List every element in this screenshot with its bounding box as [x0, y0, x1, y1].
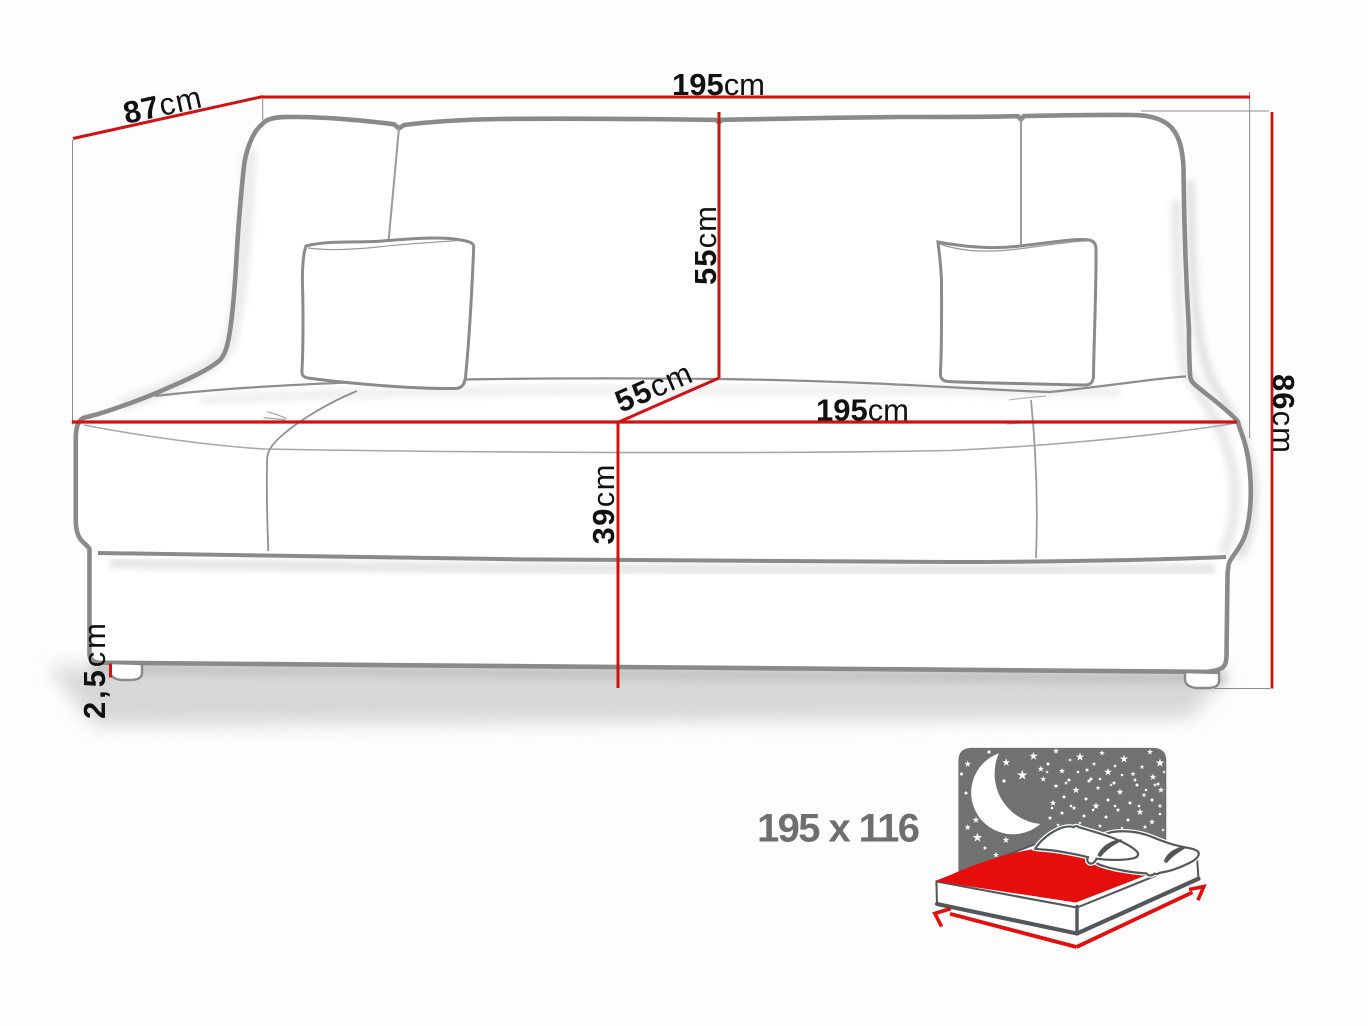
svg-text:195cm: 195cm	[816, 393, 909, 428]
svg-text:195 x 116: 195 x 116	[757, 807, 920, 851]
svg-text:86cm: 86cm	[1266, 374, 1301, 453]
svg-text:2,5cm: 2,5cm	[77, 623, 112, 719]
svg-text:55cm: 55cm	[688, 206, 723, 285]
svg-text:39cm: 39cm	[586, 465, 621, 545]
svg-text:195cm: 195cm	[672, 67, 765, 102]
